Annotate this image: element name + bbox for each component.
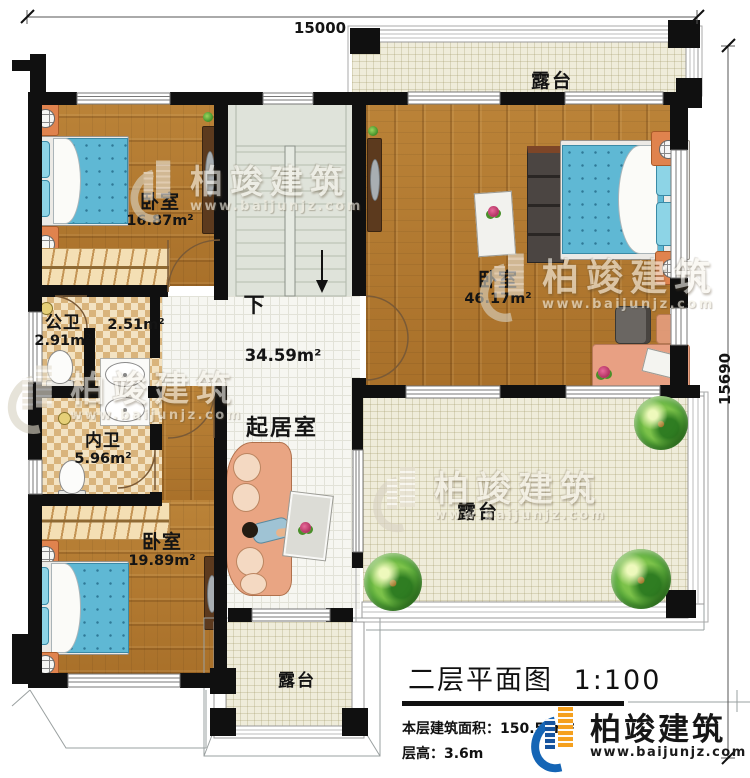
cabinet-decor: [205, 151, 215, 197]
desk-chair: [615, 306, 651, 344]
rug: [474, 191, 516, 257]
room-area: 2.91m²: [34, 333, 91, 349]
lamp-icon: [36, 109, 55, 128]
room-name: 卧室: [478, 270, 518, 291]
side-table: [656, 314, 686, 344]
room-area: 16.87m²: [126, 213, 193, 229]
nightstand: [651, 131, 685, 166]
plant-icon: [368, 126, 378, 136]
public-bathroom-label: 公卫 2.91m²: [28, 314, 98, 349]
living-room-area-label: 34.59m²: [238, 346, 328, 365]
nightstand: [655, 251, 686, 285]
brand-logo-icon: [532, 706, 584, 768]
dressing-nook-floor: [162, 386, 214, 502]
living-room-label: 起居室: [232, 410, 332, 442]
person-head: [242, 522, 258, 538]
room-area: 46.17m²: [464, 291, 531, 307]
pillow: [33, 180, 50, 217]
bed-bench: [527, 146, 564, 263]
master-bedroom-label: 卧室 46.17m²: [448, 270, 548, 308]
flower-icon: [598, 366, 610, 378]
title-text: 二层平面图: [408, 665, 553, 696]
nightstand: [30, 100, 59, 136]
tree-icon: [611, 549, 671, 609]
stairs-down-label: 下: [234, 289, 274, 319]
pillow: [656, 202, 678, 246]
private-bathroom-label: 内卫 5.96m²: [68, 432, 138, 467]
dimension-right-label: 15690: [716, 352, 734, 406]
tree-icon: [634, 396, 688, 450]
sofa-cushion: [233, 453, 261, 482]
title-scale: 1:100: [574, 665, 662, 696]
nightstand: [30, 652, 59, 676]
sofa-cushion: [236, 547, 264, 576]
hallway-area-label: 2.51m²: [104, 317, 168, 333]
brand-name: 柏竣建筑: [590, 714, 747, 747]
room-area: 19.89m²: [128, 553, 195, 569]
sofa-cushion: [232, 483, 260, 512]
light-fixture-icon: [58, 412, 71, 425]
flower-icon: [488, 206, 499, 217]
room-name: 公卫: [45, 314, 81, 333]
terrace-top-label: 露台: [512, 66, 592, 93]
wardrobe: [30, 248, 170, 287]
flower-icon: [300, 522, 311, 533]
brand-website: www.baijunjz.com: [590, 746, 747, 760]
sofa-cushion: [240, 573, 267, 595]
pillow: [32, 607, 49, 645]
room-area: 5.96m²: [74, 451, 131, 467]
room-name: 卧室: [142, 532, 182, 553]
tree-icon: [364, 553, 422, 611]
drawing-title: 二层平面图 1:100: [408, 658, 661, 697]
cabinet-decor: [370, 159, 380, 201]
plant-icon: [203, 112, 213, 122]
sink: [105, 397, 145, 422]
terrace-bottom-label: 露台: [257, 666, 337, 691]
dimension-top-label: 15000: [290, 19, 350, 37]
lamp-icon: [659, 140, 678, 159]
bedroom-bottom-left-label: 卧室 19.89m²: [112, 532, 212, 570]
brand-block: 柏竣建筑 www.baijunjz.com: [532, 706, 747, 768]
pillow: [32, 567, 49, 605]
floor-plan-canvas: 15000 15690 露台 卧室 16.87m² 卧室 46.17m² 公卫 …: [0, 0, 750, 778]
room-name: 内卫: [85, 432, 121, 451]
cabinet-decor: [207, 575, 217, 613]
stairs-floor: [228, 104, 352, 300]
lamp-icon: [662, 259, 681, 278]
terrace-right-label: 露台: [438, 497, 518, 524]
sink: [105, 362, 145, 387]
toilet: [47, 350, 73, 384]
pillow: [33, 141, 50, 178]
bedroom-top-left-label: 卧室 16.87m²: [110, 192, 210, 230]
room-name: 卧室: [140, 192, 180, 213]
cabinet: [367, 138, 382, 232]
lamp-icon: [36, 655, 55, 674]
